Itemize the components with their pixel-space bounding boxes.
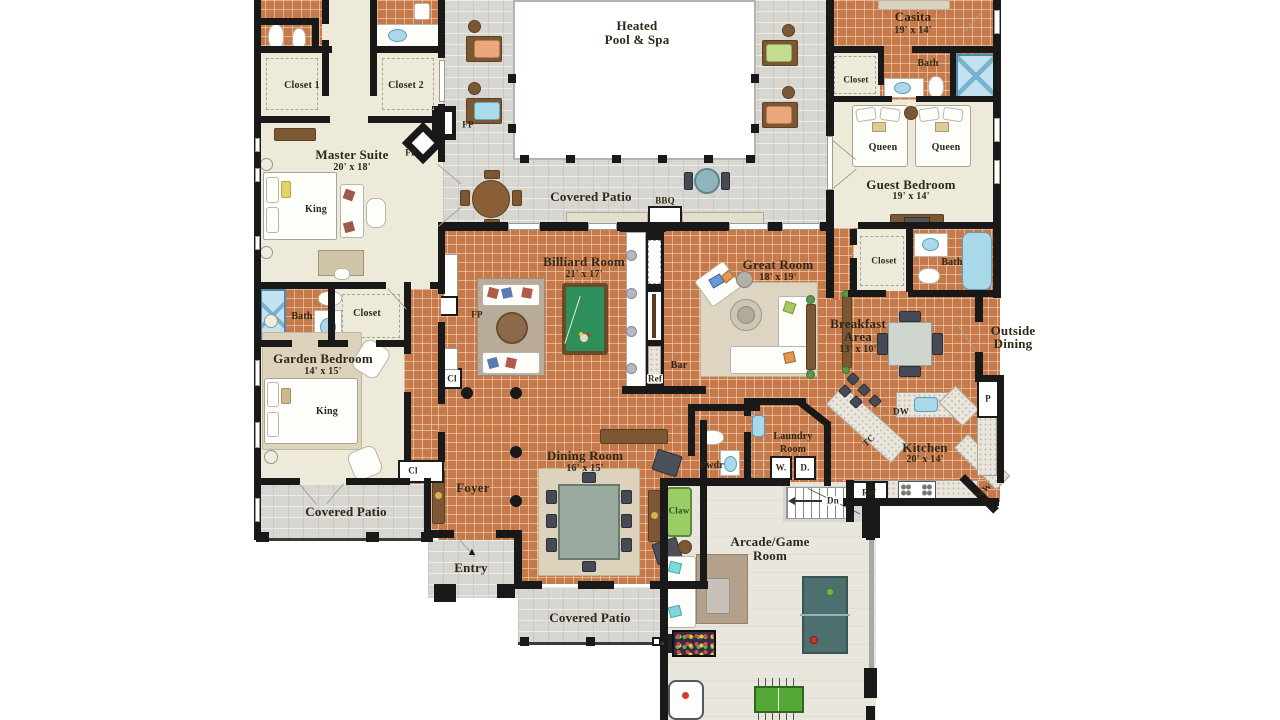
wall-segment xyxy=(824,424,831,486)
pool-column xyxy=(658,155,667,163)
window xyxy=(255,498,260,522)
french-door xyxy=(588,223,617,230)
nightstand xyxy=(260,246,273,259)
arcade-side-table xyxy=(678,540,692,554)
dining-chair xyxy=(582,561,596,572)
wall-segment xyxy=(826,222,834,229)
side-table xyxy=(782,24,795,37)
king-label-master: King xyxy=(305,205,327,216)
pool-column xyxy=(746,155,755,163)
pool-column xyxy=(508,74,516,83)
wall-segment xyxy=(438,104,445,162)
wall-segment xyxy=(438,432,445,462)
claw-label: Claw xyxy=(669,506,690,515)
wall-segment xyxy=(768,222,782,231)
window xyxy=(255,236,260,250)
pool-column xyxy=(612,155,621,163)
pool-label-line2: Pool & Spa xyxy=(605,33,670,47)
wall-segment xyxy=(866,706,875,720)
kitchen-dims: 20' x 14' xyxy=(906,455,943,466)
wall-segment xyxy=(346,478,410,485)
guest-bedroom-dims: 19' x 14' xyxy=(892,192,929,203)
casita-shower xyxy=(956,54,996,98)
left-patio-label: Covered Patio xyxy=(305,505,386,519)
patio-post-white xyxy=(652,637,661,646)
plant xyxy=(806,370,815,379)
dn-label: Dn xyxy=(826,496,840,505)
side-table-round xyxy=(736,271,753,288)
laundry-sink xyxy=(752,415,765,437)
arcade-label-line1: Arcade/Game xyxy=(730,535,809,549)
french-door xyxy=(729,223,768,230)
pool-column xyxy=(751,124,759,133)
bar-counter-top xyxy=(652,294,656,338)
bed-pillow xyxy=(855,107,877,123)
air-hockey-table xyxy=(668,680,704,720)
wall-segment xyxy=(328,289,335,343)
billiard-fireplace xyxy=(441,296,458,316)
washer-label: W. xyxy=(776,463,787,472)
ping-pong-net xyxy=(800,614,850,616)
wall-segment xyxy=(700,420,707,444)
master-vanity xyxy=(372,24,442,48)
ref-bar-label: Ref xyxy=(647,374,663,383)
pool-table xyxy=(562,283,608,355)
wall-segment xyxy=(850,229,857,245)
ottoman xyxy=(366,198,386,228)
wall-segment xyxy=(254,478,300,485)
dining-chair xyxy=(546,514,557,528)
window xyxy=(994,160,1000,184)
round-column xyxy=(510,495,522,507)
breakfast-chair xyxy=(932,333,943,355)
media-console xyxy=(806,304,816,370)
plant xyxy=(842,366,850,374)
garden-bedroom-dims: 14' x 15' xyxy=(304,367,341,378)
round-column xyxy=(510,446,522,458)
outside-dining-label-line2: Dining xyxy=(994,337,1033,351)
pwdr-label: Pwdr xyxy=(700,461,724,472)
bed-pillow-accent xyxy=(281,181,291,198)
casita-label: Casita xyxy=(895,10,932,24)
lounge-cushion xyxy=(474,40,500,58)
window xyxy=(255,422,260,448)
bed-pillow xyxy=(942,107,964,123)
dining-label: Dining Room xyxy=(547,449,623,463)
wall-segment xyxy=(438,222,508,231)
dining-chair xyxy=(621,538,632,552)
wall-segment xyxy=(906,229,913,292)
wall-segment xyxy=(826,190,834,298)
guest-bathtub xyxy=(962,232,992,290)
lounge-cushion xyxy=(474,102,500,120)
wall-segment xyxy=(370,46,444,53)
wall-segment xyxy=(370,0,377,96)
sconce xyxy=(626,288,637,299)
dining-chair xyxy=(621,514,632,528)
master-dresser xyxy=(274,128,316,141)
stove-burner xyxy=(901,484,911,496)
bed-pillow xyxy=(266,207,279,233)
pool-column xyxy=(520,155,529,163)
sectional-sofa-horizontal xyxy=(730,346,808,374)
bed-pillow xyxy=(879,107,901,123)
dining-chair xyxy=(621,490,632,504)
wall-segment xyxy=(322,0,329,24)
dw-label: DW xyxy=(893,407,909,416)
dryer-label: D. xyxy=(800,463,809,472)
patio-dining-table xyxy=(472,180,510,218)
entry-pier xyxy=(497,584,515,598)
round-column xyxy=(510,387,522,399)
wall-segment xyxy=(826,46,884,53)
dining-chair xyxy=(546,490,557,504)
pantry-label: P xyxy=(985,394,991,403)
sconce xyxy=(626,363,637,374)
queen-label-right: Queen xyxy=(932,143,961,154)
pool-label-line1: Heated xyxy=(617,19,658,33)
wall-segment xyxy=(424,478,431,536)
stairs-down-arrow xyxy=(794,500,822,502)
wall-segment xyxy=(254,0,261,540)
billiard-round-table xyxy=(496,312,528,344)
entry-arrow: ▲ xyxy=(466,547,477,559)
desk-chair xyxy=(334,268,350,280)
pool-column xyxy=(704,155,713,163)
great-room-dims: 18' x 19' xyxy=(759,273,796,284)
patio-edge xyxy=(258,538,433,541)
stairs-down-arrowhead xyxy=(788,497,795,505)
pool-column xyxy=(508,124,516,133)
wall-segment xyxy=(997,375,1004,483)
art-niche xyxy=(443,348,458,370)
wall-segment xyxy=(318,340,348,347)
fp-billiard-label: FP xyxy=(471,310,482,319)
pool-patio-label: Covered Patio xyxy=(550,190,631,204)
wall-segment xyxy=(430,282,445,289)
bed-pillow-accent xyxy=(935,122,949,132)
sofa-pillow xyxy=(521,287,533,299)
casita-closet-label: Closet xyxy=(843,75,868,84)
patio-post xyxy=(421,532,433,542)
breakfast-chair xyxy=(899,311,921,322)
queen-label-left: Queen xyxy=(869,143,898,154)
sofa-pillow xyxy=(505,357,517,369)
toilet xyxy=(918,268,940,284)
wall-segment xyxy=(254,116,330,123)
closet2-label: Closet 2 xyxy=(388,81,424,92)
sofa-pillow xyxy=(783,351,796,364)
linen-niche xyxy=(439,60,445,102)
nightstand xyxy=(260,158,273,171)
side-table xyxy=(468,20,481,33)
billiard-dims: 21' x 17' xyxy=(565,270,602,281)
vanity-sink xyxy=(724,456,737,472)
wall-segment xyxy=(438,322,445,404)
closet1-label: Closet 1 xyxy=(284,81,320,92)
window xyxy=(994,10,1000,34)
bar-niche xyxy=(648,240,661,284)
island-sink xyxy=(914,397,938,412)
wall-segment xyxy=(858,222,1000,229)
wall-segment xyxy=(254,46,332,53)
garden-bath-label: Bath xyxy=(291,312,312,323)
master-suite-label: Master Suite xyxy=(315,148,388,162)
wall-segment xyxy=(744,432,751,482)
wall-segment xyxy=(261,340,292,347)
french-door xyxy=(508,223,540,230)
side-table xyxy=(782,86,795,99)
garden-bedroom-label: Garden Bedroom xyxy=(273,352,373,366)
wall-segment xyxy=(312,18,319,48)
sconce xyxy=(626,250,637,261)
lounge-cushion xyxy=(766,44,792,62)
wall-segment xyxy=(514,530,522,588)
laundry-label-line2: Room xyxy=(780,445,806,456)
wall-segment xyxy=(622,386,706,394)
vanity-sink xyxy=(894,82,911,94)
patio-round-table xyxy=(694,168,720,194)
window xyxy=(255,138,260,152)
wall-segment xyxy=(950,53,956,98)
bed-pillow xyxy=(918,107,940,123)
fixture xyxy=(414,3,430,20)
foosball-table xyxy=(754,686,804,713)
console-clock xyxy=(435,492,442,499)
wall-segment xyxy=(617,222,729,231)
console-clock xyxy=(651,512,658,519)
nightstand-round xyxy=(904,106,918,120)
patio-post xyxy=(586,637,595,646)
wall-segment xyxy=(850,258,857,292)
wall-segment xyxy=(254,282,386,289)
bed-pillow xyxy=(267,412,279,437)
bed-pillow-accent xyxy=(872,122,886,132)
vanity-sink xyxy=(922,238,939,251)
guest-bath-label: Bath xyxy=(941,258,962,269)
dining-table xyxy=(558,484,620,560)
double-door xyxy=(827,136,833,190)
nightstand xyxy=(264,314,278,328)
casita-bath-label: Bath xyxy=(917,59,938,70)
window xyxy=(255,360,260,386)
patio-chair xyxy=(484,170,500,179)
casita-dims: 19' x 14' xyxy=(894,26,931,37)
art-niche xyxy=(443,254,458,300)
wall-segment xyxy=(848,290,886,297)
sideboard xyxy=(600,429,668,444)
entry-pier xyxy=(434,584,456,602)
arcade-window-wall xyxy=(869,540,874,668)
wall-segment xyxy=(660,478,668,720)
toilet xyxy=(928,76,944,98)
breakfast-dims: 13' x 10' xyxy=(839,345,876,356)
side-table xyxy=(468,82,481,95)
french-door xyxy=(782,223,820,230)
wall-segment xyxy=(908,290,1000,297)
dining-dims: 16' x 15' xyxy=(566,464,603,475)
king-label-garden: King xyxy=(316,407,338,418)
wall-segment xyxy=(578,581,614,589)
fp-patio-label: FP xyxy=(462,120,473,129)
pool-column xyxy=(566,155,575,163)
lounge-cushion xyxy=(766,106,792,124)
wall-segment xyxy=(660,478,790,486)
bottom-patio-label: Covered Patio xyxy=(549,611,630,625)
breakfast-chair xyxy=(899,366,921,377)
foyer-label: Foyer xyxy=(456,481,489,495)
wall-segment xyxy=(916,96,1000,102)
round-column xyxy=(461,387,473,399)
patio-post xyxy=(366,532,379,542)
pool-column xyxy=(751,74,759,83)
fp-master-label: FP xyxy=(405,148,416,157)
coffee-table-inner xyxy=(737,306,755,324)
billiard-label: Billiard Room xyxy=(543,255,625,269)
patio-post xyxy=(520,637,529,646)
wall-segment xyxy=(993,0,1001,298)
wall-segment xyxy=(826,96,892,102)
breakfast-chair xyxy=(877,333,888,355)
great-room-label: Great Room xyxy=(743,258,814,272)
cl-hall-label: Cl xyxy=(447,374,456,383)
laundry-label-line1: Laundry xyxy=(773,432,812,443)
floor-plan-canvas: { "rooms": { "closet1": {"name": "Closet… xyxy=(0,0,1280,720)
stove-burner xyxy=(922,484,932,496)
wall-segment xyxy=(864,668,877,698)
wall-segment xyxy=(826,0,834,136)
wall-segment xyxy=(846,480,854,522)
patio-chair xyxy=(512,190,522,206)
guest-closet-label: Closet xyxy=(871,256,896,265)
master-suite-dims: 20' x 18' xyxy=(333,163,370,174)
wall-segment xyxy=(438,0,445,58)
cl-foyer-label: Cl xyxy=(408,466,417,475)
pinball-machine xyxy=(672,630,716,657)
arcade-label-line2: Room xyxy=(753,549,787,563)
ref-kitchen-label: Ref xyxy=(862,488,876,497)
wall-segment xyxy=(514,581,542,589)
wall-segment xyxy=(404,282,411,354)
plant xyxy=(806,295,815,304)
wall-segment xyxy=(254,18,316,25)
wall-segment xyxy=(404,392,411,462)
pool-balls xyxy=(580,334,588,342)
kitchen-counter-right xyxy=(977,416,997,476)
patio-post xyxy=(256,532,269,542)
bed-pillow-accent xyxy=(281,388,291,404)
wall-segment xyxy=(368,116,444,123)
dining-chair xyxy=(546,538,557,552)
arcade-coffee-table xyxy=(706,578,730,614)
wall-segment xyxy=(912,46,1000,53)
sconce xyxy=(626,326,637,337)
nightstand xyxy=(264,450,278,464)
wall-segment xyxy=(688,404,695,456)
bbq-label: BBQ xyxy=(655,196,675,205)
sofa-pillow xyxy=(501,287,513,299)
bed-pillow xyxy=(266,177,279,203)
patio-chair xyxy=(684,172,693,190)
ping-pong-paddle-red xyxy=(810,636,818,644)
ping-pong-paddle-green xyxy=(826,588,834,596)
window xyxy=(255,168,260,182)
wall-segment xyxy=(878,53,884,85)
bar-label: Bar xyxy=(671,361,688,372)
garden-closet-label: Closet xyxy=(353,309,381,320)
wall-segment xyxy=(322,40,329,96)
breakfast-table xyxy=(888,322,932,366)
vanity-sink xyxy=(388,29,407,42)
air-hockey-puck xyxy=(682,692,689,699)
patio-chair xyxy=(721,172,730,190)
patio-chair xyxy=(460,190,470,206)
wall-segment xyxy=(540,222,588,231)
window xyxy=(994,118,1000,142)
wall-segment xyxy=(975,292,983,322)
bed-pillow xyxy=(267,382,279,407)
breakfast-label-line2: Area xyxy=(844,330,872,344)
entry-label: Entry xyxy=(454,561,488,575)
foosball-line xyxy=(778,688,779,711)
